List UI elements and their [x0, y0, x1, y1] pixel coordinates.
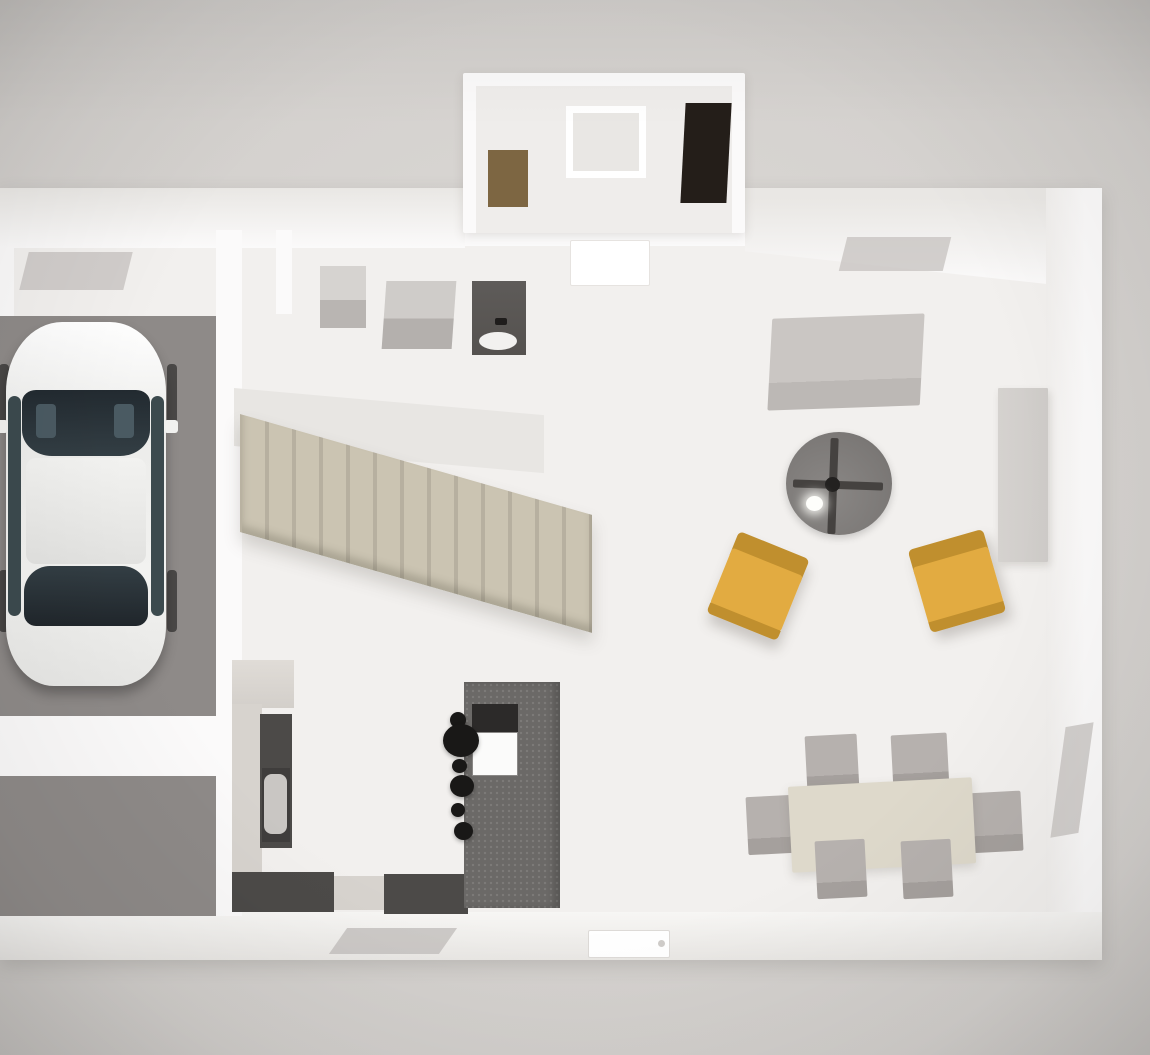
car-mirror-right [164, 420, 178, 433]
pendant-light-5 [451, 803, 465, 817]
tall-cabinet [998, 388, 1048, 562]
pendant-light-3 [452, 759, 467, 773]
pendant-light-4 [450, 775, 474, 797]
island-cooktop [472, 704, 518, 732]
car-rear-window [24, 566, 148, 626]
car-wheel-front-right [167, 364, 177, 426]
kitchen-counter-front [232, 704, 262, 872]
kitchen-cabinet-top [232, 660, 294, 708]
vanity-faucet [495, 318, 507, 325]
window-shadow-top-right [839, 237, 951, 271]
utility-divider-wall [276, 230, 292, 314]
vanity-sink [479, 332, 517, 350]
dishwasher [334, 876, 384, 910]
dining-chair-bottom-right [901, 839, 954, 900]
car-mirror-left [0, 420, 8, 433]
pendant-light-6 [454, 822, 473, 840]
car-seat-left [36, 404, 56, 438]
pendant-light-2 [443, 724, 479, 757]
entry-porch [463, 73, 745, 233]
garage-divider-wall [0, 716, 216, 776]
kitchen-counter-bottom-left [232, 872, 334, 912]
front-door [680, 103, 731, 203]
ceiling-fan-hub [825, 477, 840, 492]
car-side-window-left [8, 396, 21, 616]
porch-window [566, 106, 646, 178]
floorplan-render [0, 0, 1150, 1055]
appliance-large [382, 281, 457, 349]
car-side-window-right [151, 396, 164, 616]
kitchen-counter-bottom-right [384, 874, 468, 914]
car-wheel-rear-right [167, 570, 177, 632]
car-roof [26, 458, 146, 564]
entry-mat [570, 240, 650, 286]
window-shadow-top-left [19, 252, 132, 290]
appliance-small [320, 266, 366, 328]
car-seat-right [114, 404, 134, 438]
right-wall [1046, 188, 1102, 960]
car-windshield [22, 390, 150, 456]
exterior-door-bottom [588, 930, 670, 958]
sofa [767, 313, 924, 410]
window-shadow-bottom [329, 928, 457, 954]
door-knob [658, 940, 665, 947]
car [0, 318, 176, 692]
kitchen-sink-basin [264, 774, 287, 834]
dining-chair-left [746, 795, 795, 855]
dining-chair-bottom-left [815, 839, 868, 900]
ceiling-light-glow [806, 496, 823, 511]
porch-door-mat [488, 150, 528, 207]
bottom-wall [0, 912, 1102, 960]
